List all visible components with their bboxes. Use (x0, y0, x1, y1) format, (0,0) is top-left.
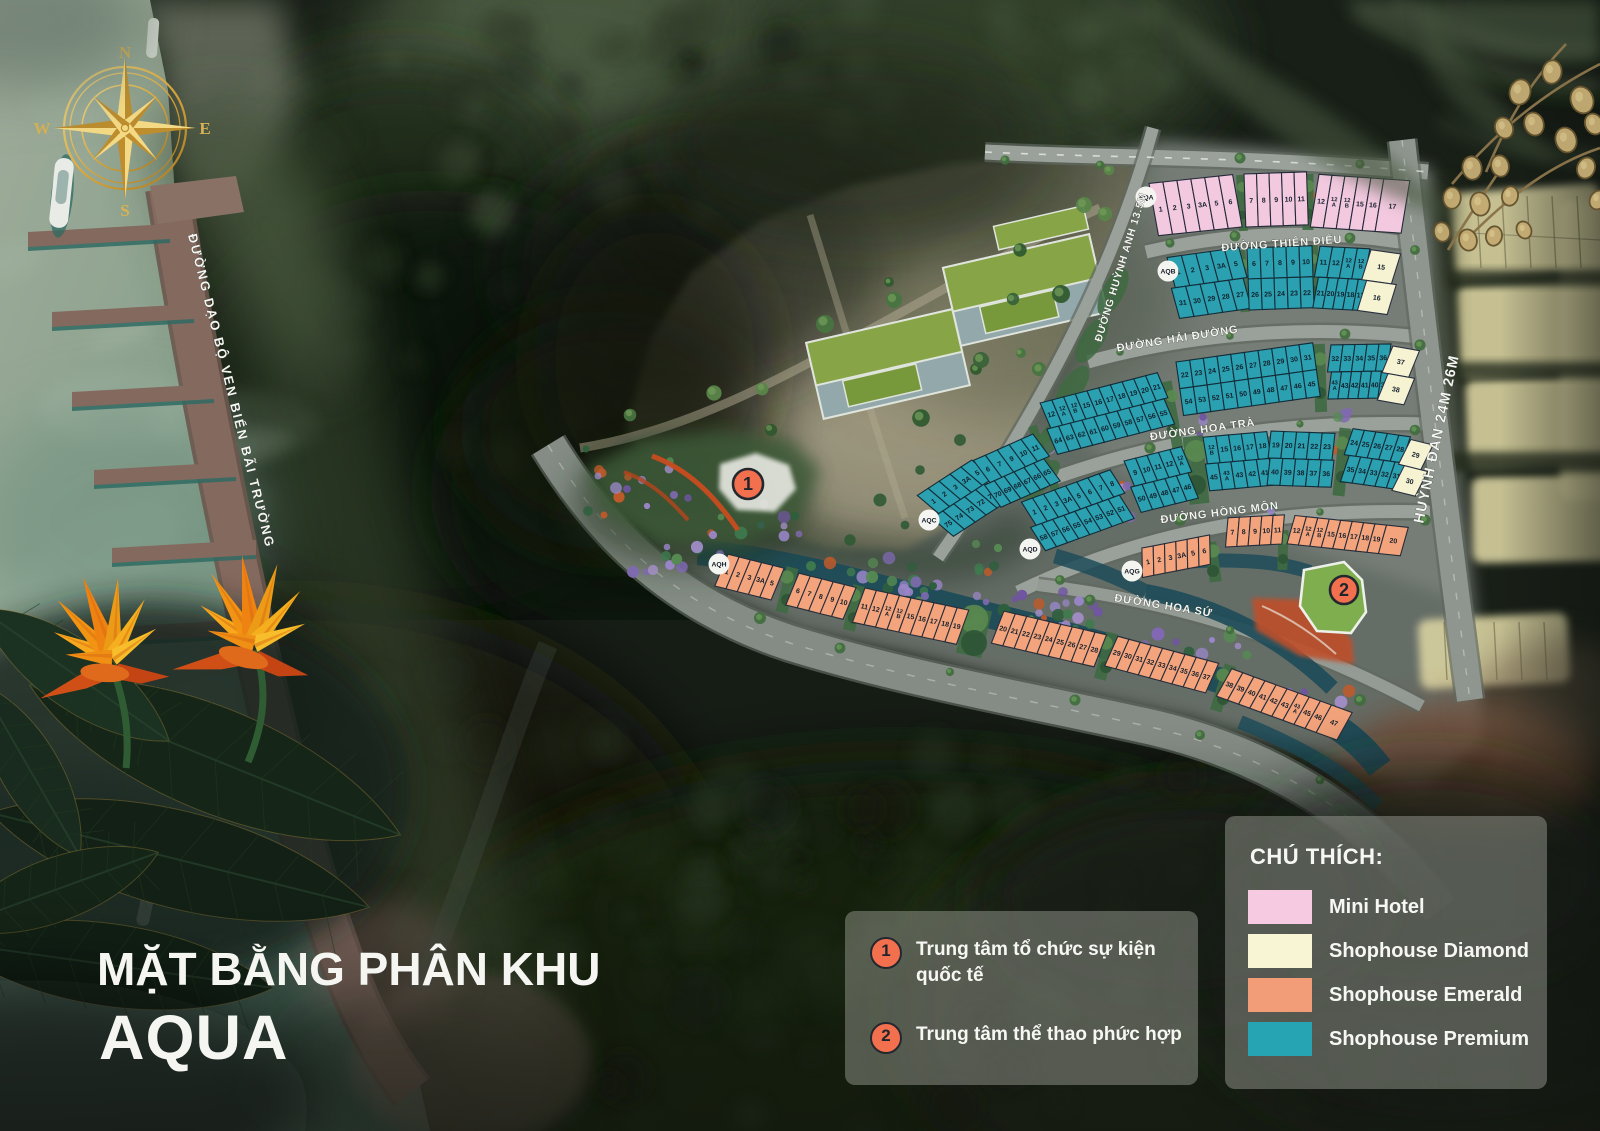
svg-text:37: 37 (1309, 471, 1317, 478)
svg-text:21: 21 (1316, 290, 1324, 297)
svg-text:50: 50 (1239, 391, 1248, 399)
svg-text:3: 3 (1186, 203, 1191, 210)
svg-text:AQB: AQB (1160, 268, 1175, 275)
svg-text:30: 30 (1193, 297, 1202, 305)
svg-text:25: 25 (1361, 441, 1370, 449)
svg-text:19: 19 (1336, 291, 1344, 298)
svg-text:18: 18 (1259, 443, 1267, 451)
svg-text:W: W (34, 119, 51, 138)
svg-text:17: 17 (1350, 534, 1359, 542)
svg-text:25: 25 (1264, 291, 1272, 298)
svg-text:AQH: AQH (711, 561, 726, 568)
svg-text:10: 10 (1302, 259, 1310, 266)
svg-text:27: 27 (1249, 362, 1258, 370)
svg-text:20: 20 (1389, 538, 1398, 546)
svg-text:16: 16 (1369, 202, 1377, 210)
svg-text:11: 11 (1297, 196, 1305, 203)
svg-text:8: 8 (1278, 260, 1282, 267)
svg-text:35: 35 (1346, 466, 1355, 474)
svg-text:38: 38 (1297, 470, 1305, 477)
svg-text:AQD: AQD (1022, 546, 1037, 553)
svg-text:33: 33 (1369, 470, 1378, 478)
svg-text:23: 23 (1194, 370, 1203, 378)
svg-text:5: 5 (1214, 200, 1219, 207)
svg-text:18: 18 (1361, 535, 1370, 543)
svg-text:18: 18 (1346, 292, 1354, 299)
svg-text:15: 15 (1220, 446, 1228, 454)
svg-text:AQC: AQC (921, 517, 936, 524)
svg-text:25: 25 (1222, 366, 1231, 374)
svg-text:22: 22 (1310, 444, 1318, 451)
svg-text:16: 16 (1233, 445, 1241, 453)
svg-text:9: 9 (1291, 260, 1295, 267)
svg-text:54: 54 (1184, 398, 1193, 406)
svg-text:19: 19 (1272, 442, 1280, 449)
svg-text:46: 46 (1294, 383, 1303, 391)
svg-text:20: 20 (1326, 291, 1334, 298)
svg-text:9: 9 (1253, 528, 1257, 535)
svg-text:1: 1 (743, 474, 753, 494)
svg-text:41: 41 (1361, 382, 1369, 389)
svg-text:32: 32 (1331, 356, 1339, 363)
svg-text:26: 26 (1235, 364, 1244, 372)
svg-text:34: 34 (1355, 356, 1363, 363)
svg-text:30: 30 (1290, 356, 1299, 364)
svg-text:17: 17 (1246, 444, 1254, 452)
svg-text:47: 47 (1280, 385, 1289, 393)
svg-text:40: 40 (1271, 469, 1279, 476)
svg-text:52: 52 (1212, 394, 1221, 402)
svg-text:28: 28 (1396, 446, 1405, 454)
svg-text:8: 8 (1262, 197, 1266, 204)
svg-text:12: 12 (1332, 260, 1340, 267)
svg-text:8: 8 (1242, 529, 1246, 536)
svg-text:16: 16 (1338, 532, 1347, 540)
svg-text:2: 2 (1339, 580, 1349, 600)
svg-text:17: 17 (1388, 203, 1396, 211)
svg-text:27: 27 (1236, 291, 1245, 299)
svg-text:42: 42 (1248, 471, 1256, 479)
svg-text:33: 33 (1343, 356, 1351, 363)
svg-text:43: 43 (1341, 383, 1349, 390)
svg-text:26: 26 (1251, 292, 1259, 299)
svg-text:29: 29 (1276, 358, 1285, 366)
svg-text:6: 6 (1252, 261, 1256, 268)
svg-text:45: 45 (1210, 474, 1218, 482)
svg-text:34: 34 (1358, 468, 1367, 476)
svg-text:29: 29 (1207, 295, 1216, 303)
svg-text:28: 28 (1263, 360, 1272, 368)
svg-text:12: 12 (1317, 198, 1325, 206)
svg-text:15: 15 (1377, 264, 1386, 272)
svg-text:31: 31 (1304, 354, 1313, 362)
svg-text:3A: 3A (1217, 263, 1227, 271)
svg-text:10: 10 (1285, 196, 1293, 203)
svg-text:27: 27 (1384, 444, 1393, 452)
svg-text:24: 24 (1350, 440, 1359, 448)
svg-text:22: 22 (1181, 372, 1190, 380)
svg-text:35: 35 (1367, 355, 1375, 362)
svg-text:15: 15 (1327, 531, 1336, 539)
svg-text:24: 24 (1277, 291, 1285, 298)
svg-text:3A: 3A (1198, 202, 1208, 210)
svg-text:19: 19 (1372, 536, 1381, 544)
svg-text:11: 11 (1319, 259, 1327, 266)
svg-text:7: 7 (1230, 530, 1234, 537)
svg-text:16: 16 (1372, 295, 1381, 303)
svg-text:12: 12 (1292, 528, 1301, 536)
svg-text:AQG: AQG (1124, 568, 1139, 575)
svg-text:9: 9 (1274, 197, 1278, 204)
svg-text:51: 51 (1225, 392, 1234, 400)
svg-text:22: 22 (1303, 290, 1311, 297)
svg-text:23: 23 (1323, 444, 1331, 451)
svg-text:42: 42 (1351, 383, 1359, 390)
svg-text:20: 20 (1285, 443, 1293, 450)
svg-text:31: 31 (1179, 299, 1188, 307)
svg-text:28: 28 (1222, 293, 1231, 301)
svg-text:E: E (199, 119, 210, 138)
svg-text:43: 43 (1235, 472, 1243, 480)
svg-text:36: 36 (1379, 355, 1387, 362)
svg-text:21: 21 (1297, 443, 1305, 450)
svg-text:40: 40 (1371, 382, 1379, 389)
svg-text:49: 49 (1253, 389, 1262, 397)
svg-text:S: S (120, 201, 129, 220)
svg-text:15: 15 (1356, 201, 1364, 209)
svg-text:7: 7 (1249, 198, 1253, 205)
svg-text:11: 11 (1274, 527, 1282, 534)
svg-text:45: 45 (1307, 381, 1316, 389)
svg-text:39: 39 (1284, 470, 1292, 477)
svg-text:37: 37 (1396, 359, 1405, 367)
svg-text:48: 48 (1266, 387, 1275, 395)
svg-text:6: 6 (1228, 199, 1233, 206)
svg-text:32: 32 (1380, 471, 1389, 479)
svg-text:36: 36 (1322, 471, 1330, 478)
svg-text:10: 10 (1262, 528, 1270, 535)
svg-text:24: 24 (1208, 368, 1217, 376)
svg-text:7: 7 (1265, 260, 1269, 267)
svg-text:53: 53 (1198, 396, 1207, 404)
svg-text:23: 23 (1290, 290, 1298, 297)
svg-text:38: 38 (1391, 386, 1400, 394)
svg-text:26: 26 (1373, 443, 1382, 451)
